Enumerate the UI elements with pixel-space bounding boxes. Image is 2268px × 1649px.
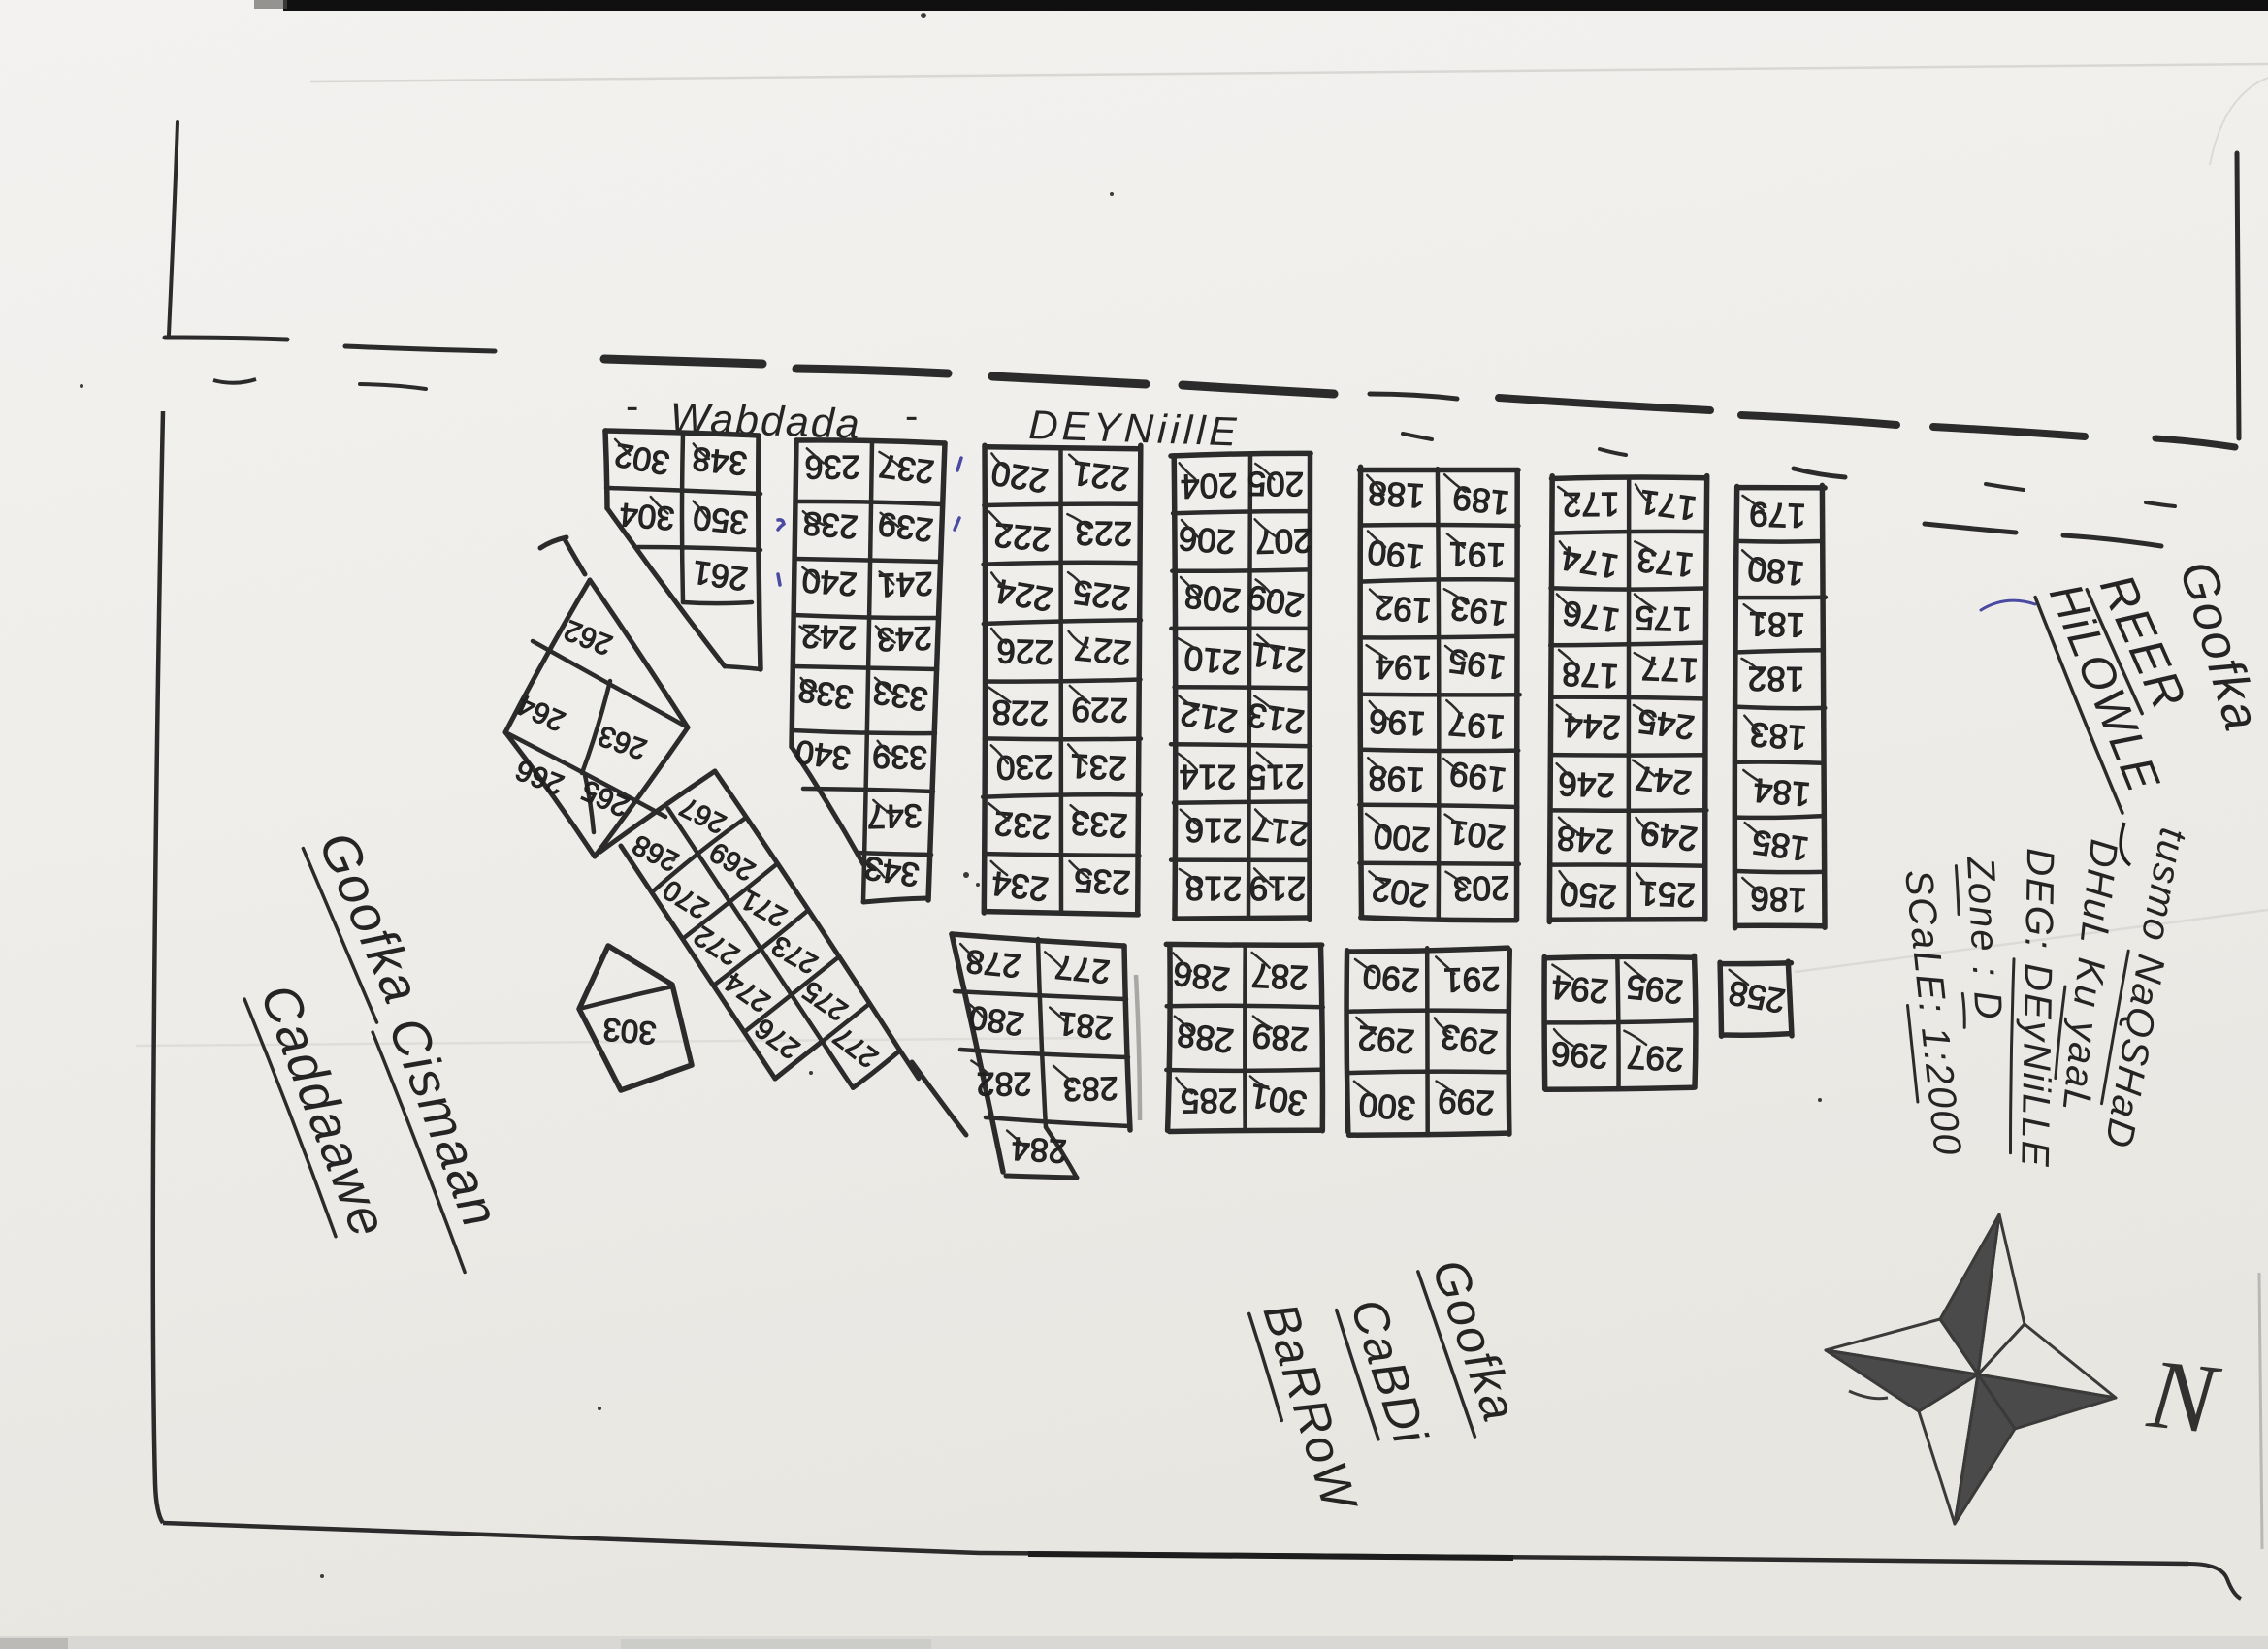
svg-text:-: - — [905, 395, 918, 437]
svg-text:188: 188 — [1367, 473, 1425, 514]
svg-text:225: 225 — [1071, 572, 1132, 617]
svg-text:288: 288 — [1175, 1015, 1236, 1059]
svg-text:296: 296 — [1550, 1034, 1609, 1075]
svg-text:215: 215 — [1247, 757, 1305, 795]
svg-text:303: 303 — [601, 1012, 658, 1051]
svg-text:243: 243 — [876, 619, 932, 658]
svg-text:241: 241 — [877, 565, 933, 603]
svg-text:247: 247 — [1634, 759, 1694, 802]
svg-text:199: 199 — [1447, 754, 1508, 798]
svg-text:182: 182 — [1748, 660, 1805, 698]
svg-text:222: 222 — [992, 515, 1053, 558]
svg-text:242: 242 — [801, 617, 858, 656]
svg-text:180: 180 — [1746, 549, 1806, 593]
svg-text:237: 237 — [877, 447, 936, 491]
svg-text:350: 350 — [692, 499, 751, 541]
svg-text:218: 218 — [1184, 869, 1242, 908]
svg-text:230: 230 — [996, 747, 1053, 786]
svg-text:227: 227 — [1073, 629, 1133, 672]
svg-text:184: 184 — [1752, 771, 1812, 814]
svg-text:195: 195 — [1446, 641, 1507, 687]
svg-text:251: 251 — [1638, 874, 1697, 914]
svg-text:221: 221 — [1070, 454, 1131, 499]
svg-text:287: 287 — [1250, 956, 1309, 997]
svg-text:348: 348 — [691, 439, 749, 481]
svg-text:204: 204 — [1181, 466, 1239, 505]
svg-text:208: 208 — [1183, 576, 1243, 619]
svg-text:213: 213 — [1246, 695, 1307, 741]
svg-text:179: 179 — [1749, 495, 1807, 534]
svg-text:290: 290 — [1362, 957, 1421, 999]
svg-text:226: 226 — [996, 631, 1054, 671]
svg-text:291: 291 — [1443, 959, 1502, 999]
svg-text:Zone : D: Zone : D — [1959, 855, 2010, 1021]
svg-text:231: 231 — [1069, 747, 1127, 788]
svg-text:235: 235 — [1073, 860, 1131, 901]
svg-text:217: 217 — [1250, 809, 1311, 853]
svg-text:205: 205 — [1247, 465, 1305, 503]
svg-text:171: 171 — [1637, 482, 1699, 527]
svg-text:295: 295 — [1625, 967, 1685, 1011]
svg-text:177: 177 — [1641, 649, 1700, 689]
svg-text:211: 211 — [1248, 634, 1308, 680]
svg-text:293: 293 — [1439, 1017, 1500, 1061]
svg-text:238: 238 — [801, 504, 859, 545]
svg-text:234: 234 — [989, 864, 1051, 909]
svg-text:261: 261 — [691, 553, 751, 598]
svg-text:192: 192 — [1374, 588, 1433, 630]
svg-text:175: 175 — [1635, 598, 1693, 638]
svg-text:285: 285 — [1181, 1082, 1238, 1120]
svg-text:278: 278 — [964, 942, 1022, 984]
svg-text:185: 185 — [1750, 823, 1811, 868]
svg-text:219: 219 — [1249, 869, 1307, 907]
svg-text:189: 189 — [1451, 478, 1511, 522]
svg-text:214: 214 — [1180, 758, 1237, 795]
svg-text:284: 284 — [1011, 1129, 1068, 1169]
svg-text:181: 181 — [1748, 604, 1805, 643]
svg-text:340: 340 — [794, 732, 853, 777]
svg-text:304: 304 — [618, 496, 676, 537]
svg-text:245: 245 — [1636, 701, 1697, 746]
svg-text:193: 193 — [1448, 588, 1509, 632]
svg-text:248: 248 — [1556, 819, 1615, 860]
svg-text:194: 194 — [1375, 648, 1432, 687]
svg-text:232: 232 — [992, 804, 1052, 847]
svg-text:183: 183 — [1749, 715, 1808, 757]
svg-text:249: 249 — [1638, 813, 1700, 857]
svg-text:239: 239 — [876, 504, 935, 548]
svg-text:297: 297 — [1626, 1037, 1685, 1078]
svg-text:294: 294 — [1550, 968, 1609, 1011]
svg-text:186: 186 — [1750, 879, 1808, 919]
svg-text:-: - — [626, 385, 638, 428]
svg-text:172: 172 — [1563, 485, 1620, 523]
svg-text:223: 223 — [1075, 513, 1132, 552]
svg-text:202: 202 — [1370, 869, 1431, 915]
svg-text:246: 246 — [1558, 764, 1616, 804]
svg-text:228: 228 — [991, 693, 1049, 731]
svg-text:201: 201 — [1446, 813, 1507, 857]
svg-text:283: 283 — [1062, 1069, 1118, 1107]
svg-text:216: 216 — [1184, 811, 1242, 850]
svg-text:DEG: DEyNiiLLE: DEG: DEyNiiLLE — [2013, 848, 2061, 1169]
svg-text:203: 203 — [1453, 868, 1510, 907]
svg-text:281: 281 — [1056, 1004, 1115, 1046]
svg-text:244: 244 — [1563, 706, 1621, 747]
svg-text:200: 200 — [1373, 817, 1432, 858]
svg-text:240: 240 — [800, 562, 858, 602]
svg-text:233: 233 — [1070, 803, 1129, 845]
